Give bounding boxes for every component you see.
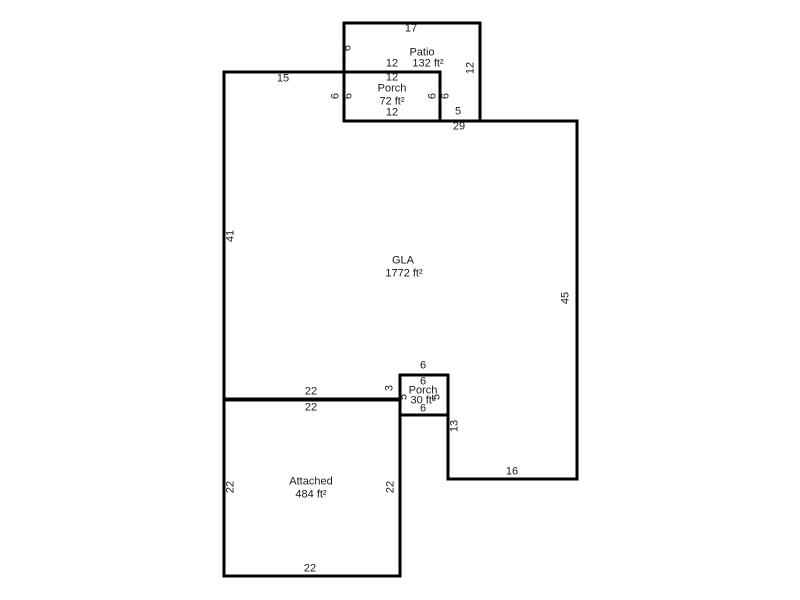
room-area-attached: 484 ft² bbox=[295, 490, 326, 501]
dim-patio-step: 5 bbox=[455, 107, 461, 118]
dim-patio-right: 12 bbox=[466, 62, 477, 74]
dim-gla-top-left: 15 bbox=[277, 74, 289, 85]
dim-gla-left: 41 bbox=[226, 230, 237, 242]
dim-patio-bottom-inner: 12 bbox=[386, 59, 398, 70]
dim-gla-right: 45 bbox=[561, 292, 572, 304]
dim-gla-top-right: 29 bbox=[453, 122, 465, 133]
dim-garage-left: 22 bbox=[226, 481, 237, 493]
room-label-attached: Attached bbox=[289, 477, 332, 488]
dim-upper-porch-left-outer: 6 bbox=[331, 93, 342, 99]
dim-lower-porch-right: 5 bbox=[432, 394, 443, 400]
floorplan-canvas: 17 6 12 Patio 132 ft² 12 5 12 6 6 6 6 Po… bbox=[0, 0, 800, 600]
dim-patio-top: 17 bbox=[405, 24, 417, 35]
room-label-gla: GLA bbox=[392, 256, 414, 267]
dim-upper-porch-right-outer: 6 bbox=[441, 93, 452, 99]
dim-upper-porch-bottom: 12 bbox=[386, 108, 398, 119]
room-label-upper-porch: Porch bbox=[378, 84, 407, 95]
dim-patio-left: 6 bbox=[343, 45, 354, 51]
room-area-patio: 132 ft² bbox=[412, 59, 443, 70]
dim-upper-porch-right-inner: 6 bbox=[428, 93, 439, 99]
dim-lower-porch-top-outer: 6 bbox=[420, 361, 426, 372]
dim-garage-top: 22 bbox=[305, 403, 317, 414]
dim-garage-right: 22 bbox=[386, 481, 397, 493]
dim-gla-bottom-right: 16 bbox=[506, 467, 518, 478]
dim-upper-porch-left-inner: 6 bbox=[344, 93, 355, 99]
dim-lower-porch-bottom: 6 bbox=[420, 404, 426, 415]
dim-lower-porch-left: 5 bbox=[399, 394, 410, 400]
dim-gla-bottom-left: 22 bbox=[305, 387, 317, 398]
dim-garage-bottom: 22 bbox=[304, 564, 316, 575]
room-area-gla: 1772 ft² bbox=[385, 269, 422, 280]
dim-gla-right-step: 13 bbox=[450, 420, 461, 432]
dim-gla-step: 3 bbox=[385, 385, 396, 391]
